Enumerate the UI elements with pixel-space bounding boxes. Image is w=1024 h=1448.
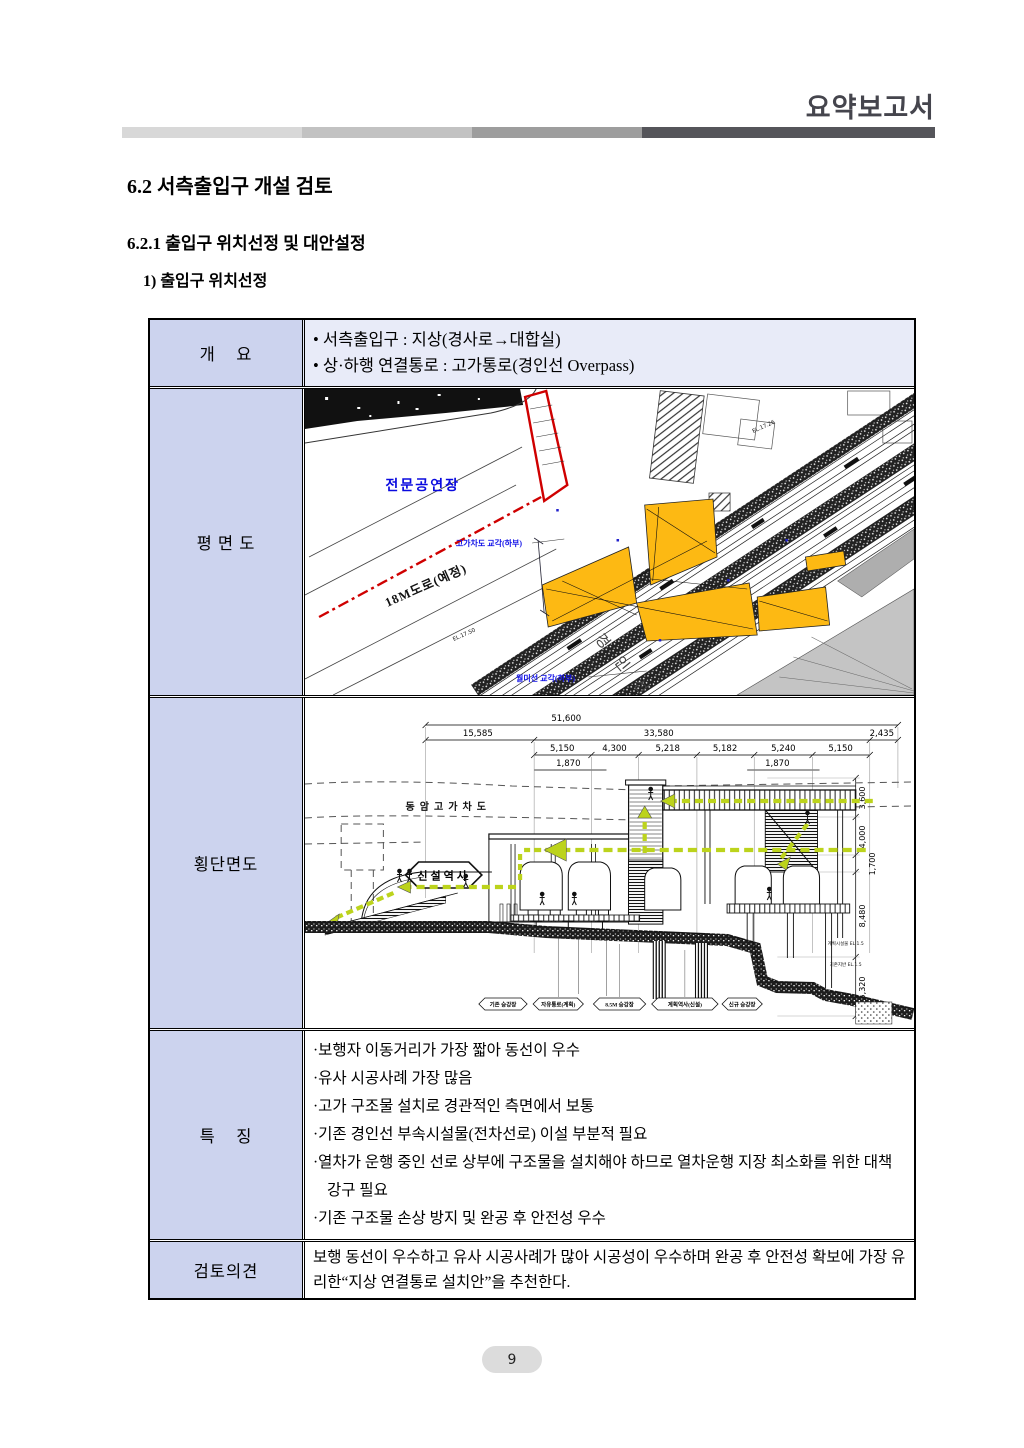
table-row-cross-section: 횡단면도: [150, 695, 914, 1028]
row-label-features: 특 징: [150, 1031, 302, 1239]
svg-text:4,300: 4,300: [602, 744, 626, 754]
svg-text:5,150: 5,150: [550, 744, 574, 754]
svg-text:계획역사(신설): 계획역사(신설): [668, 1001, 702, 1009]
features-content: 보행자 이동거리가 가장 짧아 동선이 우수 유사 시공사례 가장 많음 고가 …: [302, 1031, 914, 1239]
right-stair: [765, 810, 817, 872]
item-heading: 1) 출입구 위치선정: [143, 267, 267, 291]
bar-segment-1: [122, 127, 302, 138]
svg-text:15,585: 15,585: [463, 729, 493, 739]
svg-text:4,000: 4,000: [858, 826, 867, 849]
plan-elevation-mark: EL.17.50: [452, 627, 477, 642]
xsec-dimension-labels: 51,600 15,585 33,580 2,435 5,150 4,300 5…: [463, 714, 894, 769]
feature-item: 고가 구조물 설치로 경관적인 측면에서 보통: [313, 1093, 904, 1121]
bar-segment-2: [302, 127, 472, 138]
review-content: 보행 동선이 우수하고 유사 시공사례가 많아 시공성이 우수하며 완공 후 안…: [302, 1242, 914, 1298]
svg-text:신규 승강장: 신규 승강장: [729, 1001, 756, 1009]
svg-text:기존지반 EL.1.5: 기존지반 EL.1.5: [830, 961, 862, 968]
cross-section-drawing: 51,600 15,585 33,580 2,435 5,150 4,300 5…: [305, 698, 914, 1028]
review-table: 개 요 서측출입구 : 지상(경사로→대합실) 상·하행 연결통로 : 고가통로…: [148, 318, 916, 1300]
bar-segment-4: [642, 127, 935, 138]
overview-bullet: 상·하행 연결통로 : 고가통로(경인선 Overpass): [313, 353, 906, 379]
plan-drawing-cell: 전문공연장 고가차도 교각(하부) 월미선 교각(하부) 18M도로(예정) 경…: [302, 389, 914, 695]
feature-item: 유사 시공사례 가장 많음: [313, 1065, 904, 1093]
svg-text:5,182: 5,182: [713, 744, 737, 754]
svg-text:33,580: 33,580: [644, 729, 674, 739]
svg-text:51,600: 51,600: [551, 714, 581, 724]
feature-item: 기존 경인선 부속시설물(전차선로) 이설 부분적 필요: [313, 1121, 904, 1149]
overview-bullet: 서측출입구 : 지상(경사로→대합실): [313, 327, 906, 353]
document-page: 요약보고서 6.2 서측출입구 개설 검토 6.2.1 출입구 위치선정 및 대…: [0, 0, 1024, 1448]
feature-item: 기존 구조물 손상 방지 및 완공 후 안전성 우수: [313, 1205, 904, 1233]
svg-text:2,435: 2,435: [870, 729, 894, 739]
svg-text:계획시설물 EL.1.5: 계획시설물 EL.1.5: [828, 940, 864, 947]
svg-text:8,480: 8,480: [858, 905, 867, 928]
row-label-review: 검토의견: [150, 1242, 302, 1298]
svg-text:기존 승강장: 기존 승강장: [490, 1001, 517, 1009]
track-structures: [511, 904, 850, 988]
overview-content: 서측출입구 : 지상(경사로→대합실) 상·하행 연결통로 : 고가통로(경인선…: [302, 320, 914, 386]
table-row-overview: 개 요 서측출입구 : 지상(경사로→대합실) 상·하행 연결통로 : 고가통로…: [150, 320, 914, 386]
elevated-walkway: [663, 786, 856, 938]
svg-text:8.5M 승강장: 8.5M 승강장: [605, 1001, 634, 1009]
svg-text:1,700: 1,700: [868, 853, 877, 876]
table-row-features: 특 징 보행자 이동거리가 가장 짧아 동선이 우수 유사 시공사례 가장 많음…: [150, 1028, 914, 1239]
table-row-plan: 평 면 도: [150, 386, 914, 695]
plan-hall-label: 전문공연장: [385, 477, 460, 494]
row-label-overview: 개 요: [150, 320, 302, 386]
station-callout-label: 신설역사: [417, 869, 470, 883]
plan-view-drawing: 전문공연장 고가차도 교각(하부) 월미선 교각(하부) 18M도로(예정) 경…: [305, 389, 914, 695]
review-text: 보행 동선이 우수하고 유사 시공사례가 많아 시공성이 우수하며 완공 후 안…: [305, 1242, 914, 1298]
row-label-plan: 평 면 도: [150, 389, 302, 695]
svg-text:자유통로(계획): 자유통로(계획): [541, 1001, 575, 1009]
svg-text:5,150: 5,150: [828, 744, 852, 754]
row-label-cross-section: 횡단면도: [150, 698, 302, 1028]
feature-item: 열차가 운행 중인 선로 상부에 구조물을 설치해야 하므로 열차운행 지장 최…: [313, 1149, 904, 1205]
subsection-heading: 6.2.1 출입구 위치선정 및 대안설정: [127, 229, 366, 254]
xsec-overpass-label: 동암고가차도: [405, 800, 491, 813]
svg-text:1,870: 1,870: [765, 759, 789, 769]
table-row-review: 검토의견 보행 동선이 우수하고 유사 시공사례가 많아 시공성이 우수하며 완…: [150, 1239, 914, 1298]
plan-rail-pier-label: 월미선 교각(하부): [516, 673, 575, 683]
svg-text:3,600: 3,600: [858, 787, 867, 810]
plan-pier-label: 고가차도 교각(하부): [456, 538, 523, 548]
page-title: 요약보고서: [806, 86, 935, 125]
bar-segment-3: [472, 127, 642, 138]
svg-text:1,870: 1,870: [556, 759, 580, 769]
page-number: 9: [508, 1352, 517, 1368]
page-number-badge: 9: [482, 1346, 542, 1373]
svg-text:5,240: 5,240: [771, 744, 795, 754]
feature-item: 보행자 이동거리가 가장 짧아 동선이 우수: [313, 1037, 904, 1065]
bottom-hex-labels: 기존 승강장 자유통로(계획) 8.5M 승강장 계획역사(신설) 신규 승강장: [479, 940, 762, 1010]
cross-section-cell: 51,600 15,585 33,580 2,435 5,150 4,300 5…: [302, 698, 914, 1028]
svg-text:5,218: 5,218: [656, 744, 680, 754]
header-gradient-bar: [122, 127, 935, 138]
plan-road-label: 18M도로(예정): [383, 560, 469, 609]
section-heading: 6.2 서측출입구 개설 검토: [127, 170, 333, 199]
